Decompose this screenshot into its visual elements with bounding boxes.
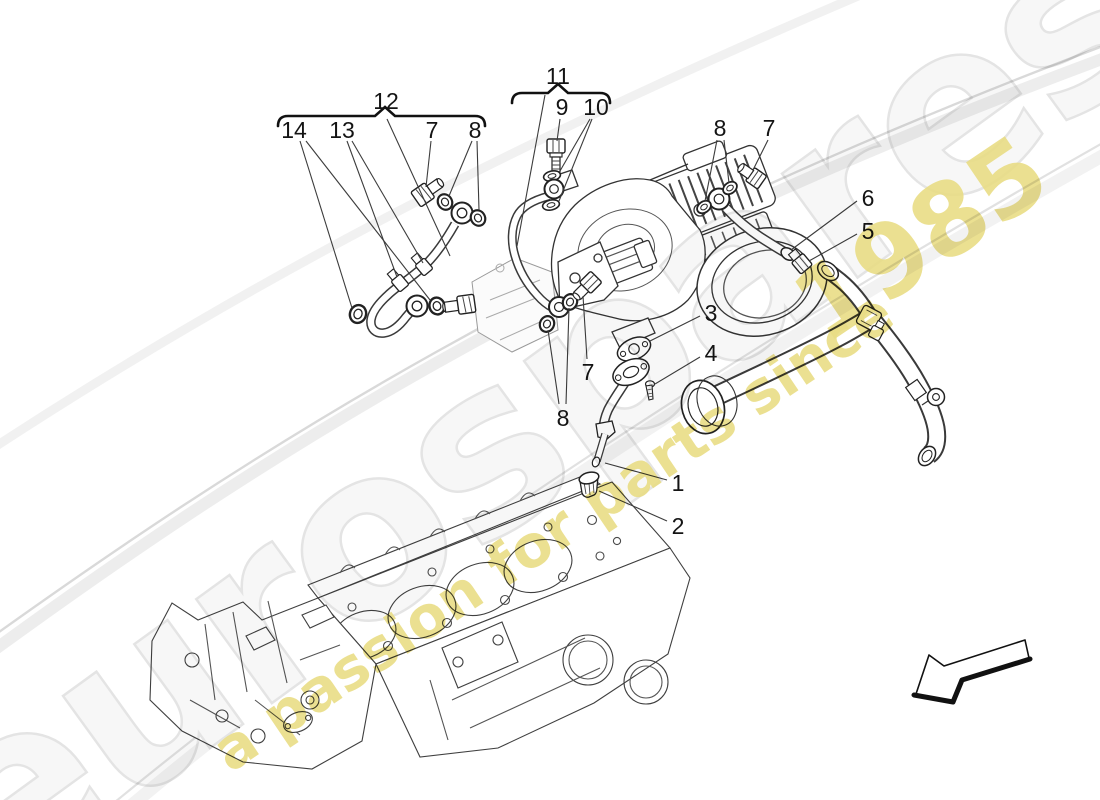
callout-number-part-10: 10 — [583, 94, 609, 120]
sealing-washer-14a — [347, 303, 368, 325]
leader-line-part-8-left — [449, 141, 472, 196]
leader-line-part-13 — [347, 141, 397, 277]
callout-number-part-14: 14 — [281, 117, 307, 143]
banjo-eye-bottom — [407, 296, 428, 317]
parts-diagram-page: 12141378119108765347812 eurospares a pas… — [0, 0, 1100, 800]
callout-number-part-9: 9 — [556, 94, 569, 120]
callout-part-13: 13 — [329, 117, 423, 277]
banjo-eye-top — [452, 203, 473, 224]
callout-number-group-12: 12 — [373, 88, 399, 114]
callout-number-part-7-left: 7 — [426, 117, 439, 143]
callout-number-part-8-left: 8 — [469, 117, 482, 143]
callout-part-7-left: 7 — [426, 117, 439, 187]
view-direction-arrow — [914, 640, 1030, 702]
leader-line-part-7-left — [426, 141, 431, 187]
leader-line-group-11 — [517, 95, 545, 246]
callout-part-8-left: 8 — [449, 117, 481, 210]
callout-number-group-11: 11 — [546, 63, 570, 89]
callout-number-part-13: 13 — [329, 117, 355, 143]
callout-number-part-2: 2 — [672, 513, 685, 539]
parts-diagram-canvas: 12141378119108765347812 eurospares a pas… — [0, 0, 1100, 800]
